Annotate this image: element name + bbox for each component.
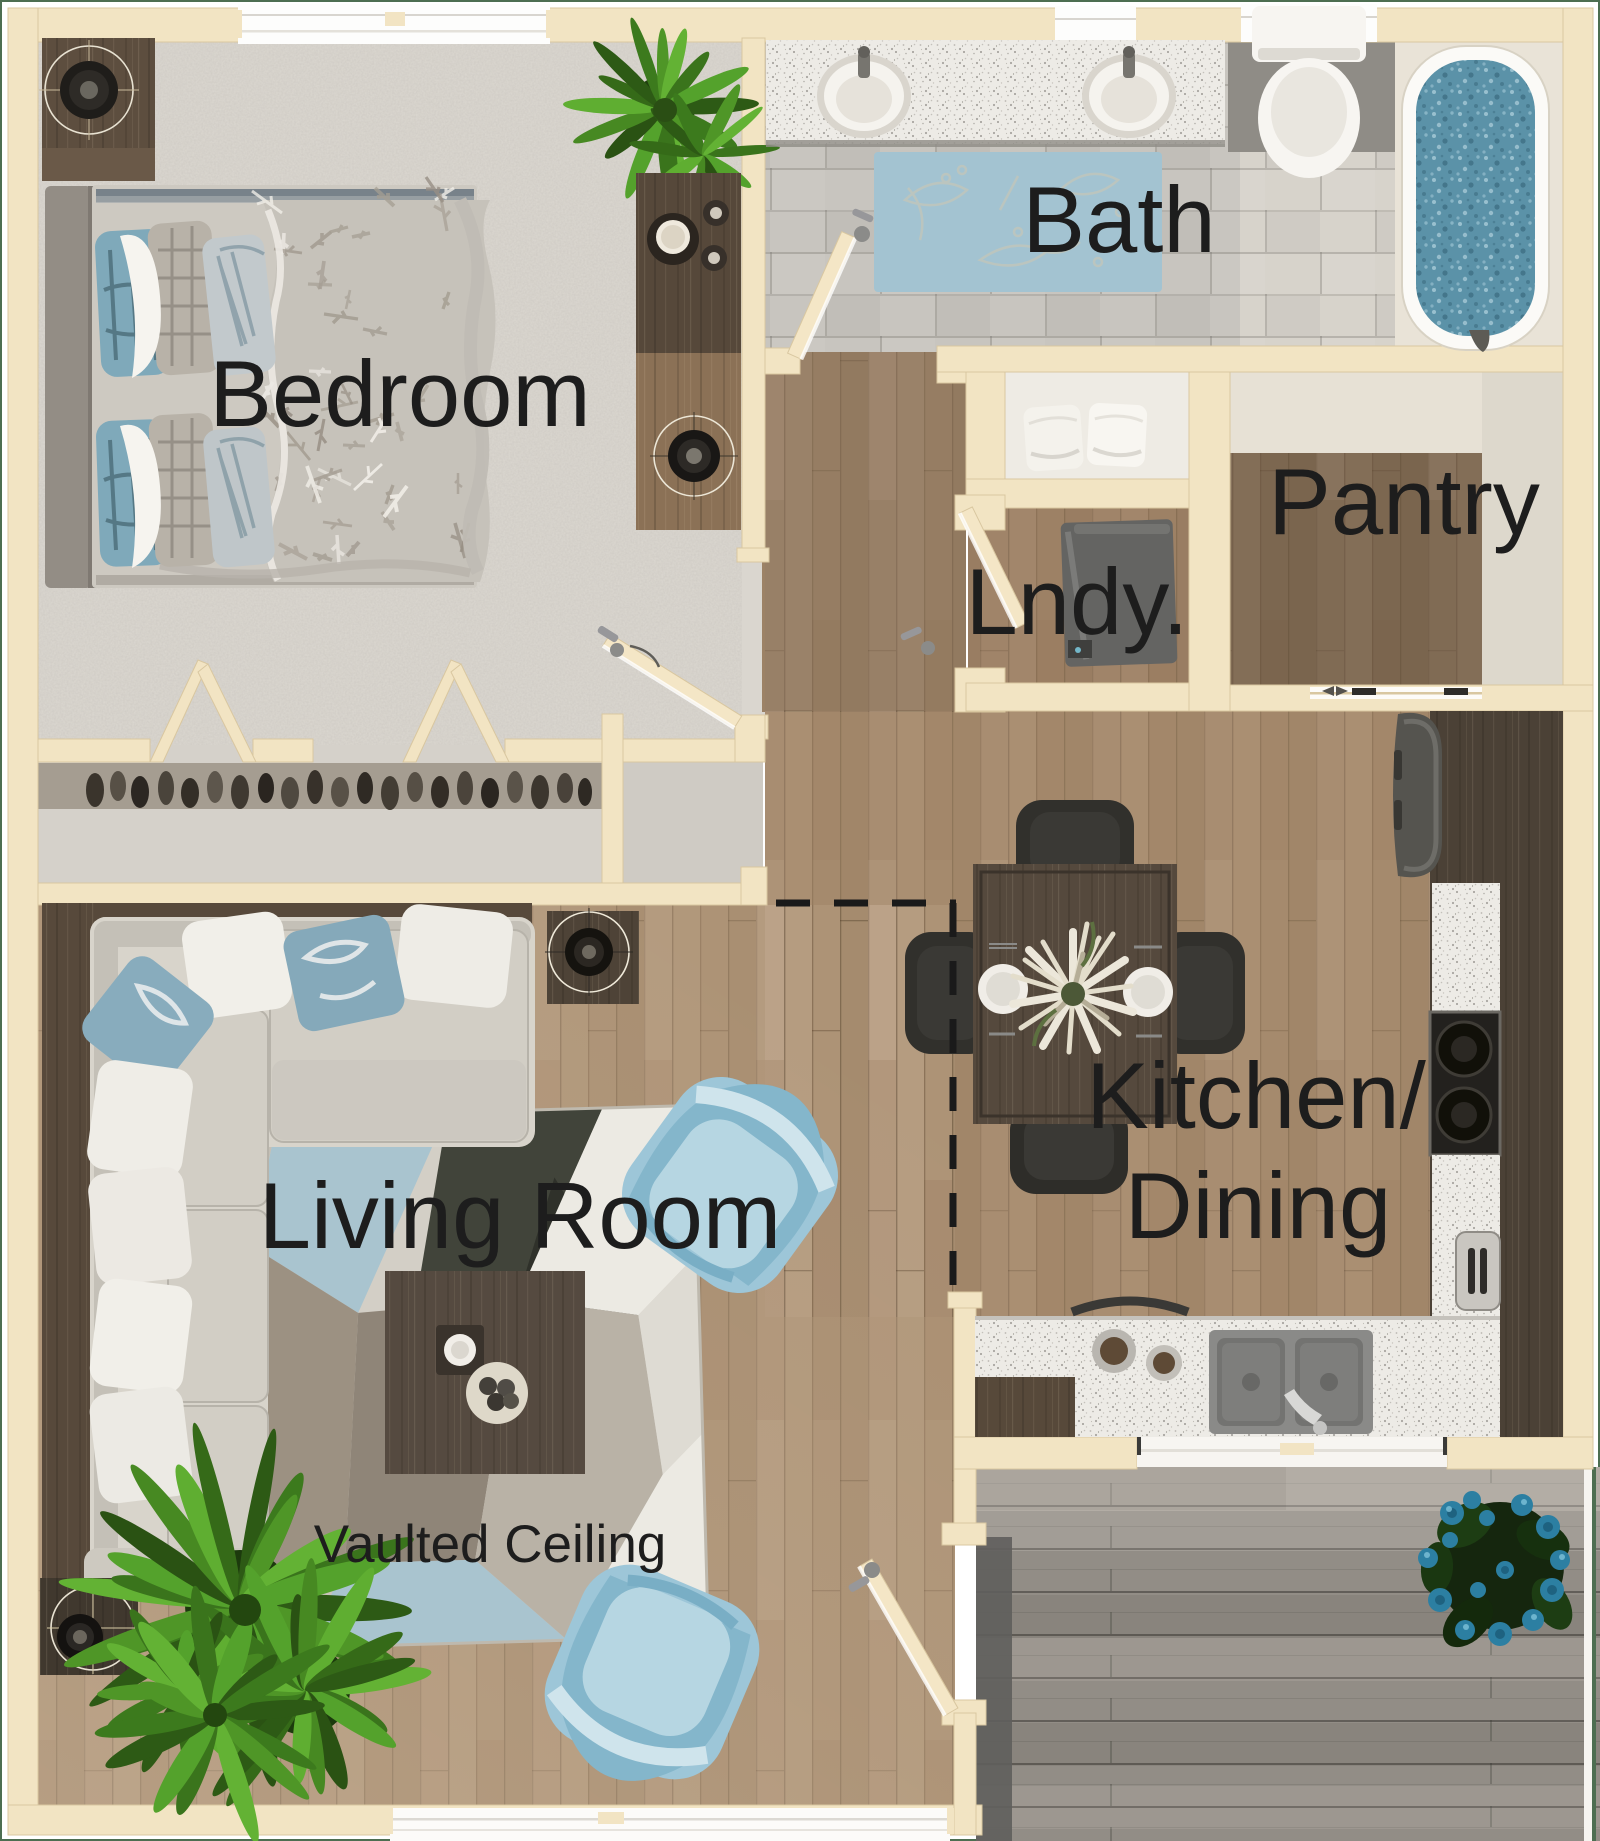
svg-text:Living Room: Living Room (259, 1163, 781, 1268)
svg-text:Kitchen/: Kitchen/ (1086, 1043, 1427, 1148)
svg-text:Dining: Dining (1125, 1153, 1392, 1258)
svg-text:Lndy.: Lndy. (966, 549, 1189, 654)
svg-text:Bath: Bath (1022, 167, 1215, 272)
svg-text:Vaulted Ceiling: Vaulted Ceiling (314, 1515, 667, 1574)
svg-text:Pantry: Pantry (1268, 449, 1540, 554)
svg-text:Bedroom: Bedroom (209, 341, 590, 446)
